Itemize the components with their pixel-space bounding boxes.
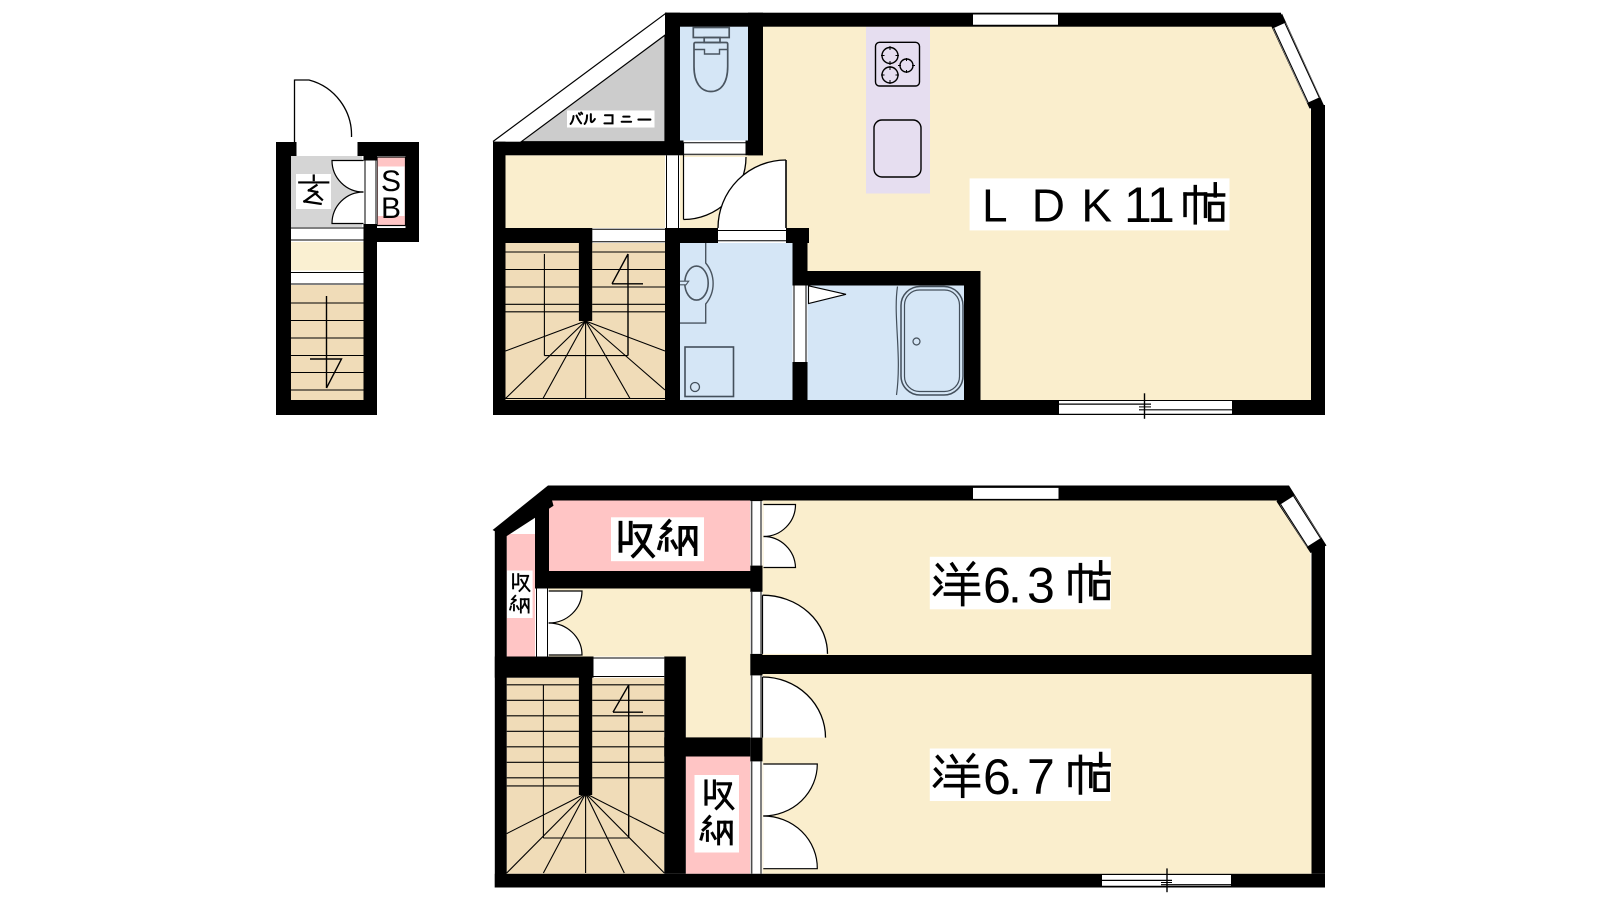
svg-text:1: 1 bbox=[1147, 177, 1175, 233]
svg-text:B: B bbox=[381, 192, 401, 225]
svg-text:3: 3 bbox=[1027, 558, 1055, 614]
svg-text:D: D bbox=[1032, 180, 1065, 232]
svg-text:6: 6 bbox=[983, 558, 1011, 614]
svg-text:7: 7 bbox=[1027, 749, 1055, 805]
svg-text:K: K bbox=[1081, 180, 1112, 232]
svg-text:L: L bbox=[982, 180, 1008, 232]
svg-text:.: . bbox=[1008, 749, 1022, 805]
svg-text:6: 6 bbox=[983, 749, 1011, 805]
svg-text:.: . bbox=[1008, 558, 1022, 614]
